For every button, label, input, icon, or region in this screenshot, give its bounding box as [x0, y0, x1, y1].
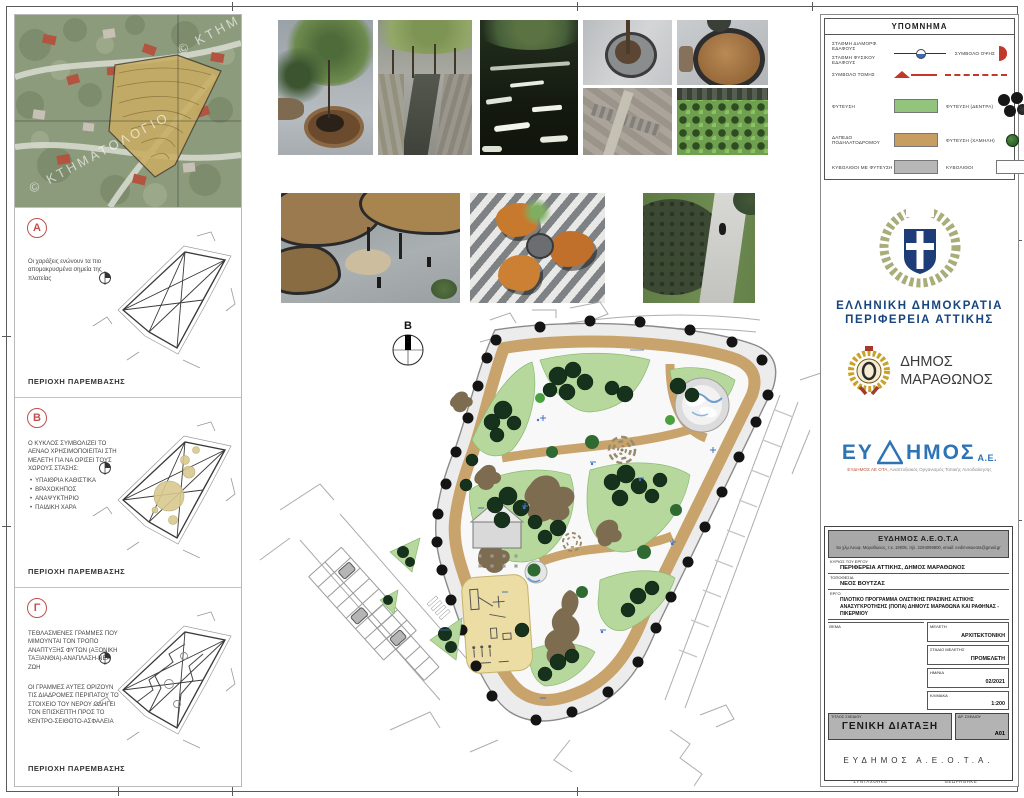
legend-planting: ΦΥΤΕΥΣΗ — [832, 104, 894, 109]
project-row: ΕΡΓΟ ΠΙΛΟΤΙΚΟ ΠΡΟΓΡΑΜΜΑ ΟΛΙΣΤΙΚΗΣ ΠΡΑΣΙΝ… — [828, 590, 1009, 620]
elevation-marker-icon — [999, 46, 1007, 61]
ref-photo-grass-pavers — [677, 88, 768, 155]
republic-line1: ΕΛΛΗΝΙΚΗ ΔΗΜΟΚΡΑΤΙΑ — [821, 300, 1018, 312]
marathon-emblem-icon — [846, 345, 892, 397]
checked-signature: ΘΕΩΡΗΘΗΚΕ ΓΕΩΡΓΙΟΣ ΚΑΡΑΜΕΣΙΝΗΣ — [913, 779, 1009, 798]
panel-b-caption: ΠΕΡΙΟΧΗ ΠΑΡΕΜΒΑΣΗΣ — [28, 567, 125, 576]
ref-photo-tree-planter — [278, 20, 373, 155]
sheet-number-box: ΑΡ. ΣΧΕΔΙΟΥ Α01 — [955, 713, 1009, 740]
north-symbol — [100, 271, 111, 285]
concept-panel-c: Γ ΤΕΘΛΑΣΜΕΝΕΣ ΓΡΑΜΜΕΣ ΠΟΥ ΜΙΜΟΥΝΤΑΙ ΤΟΝ … — [15, 587, 241, 785]
north-symbol — [100, 651, 111, 665]
legend-pavers: ΚΥΒΟΛΙΘΟΙ — [946, 165, 996, 170]
company-address: 5ο χλμ Λεωφ. Μαραθώνος, τ.κ. 19005, τηλ.… — [829, 545, 1008, 550]
shrub-symbol-icon — [1006, 134, 1019, 147]
stage-value: ΠΡΟΜΕΛΕΤΗ — [971, 656, 1005, 662]
subject-label: ΘΕΜΑ — [829, 624, 924, 629]
company-name: ΕΥΔΗΜΟΣ Α.Ε.Ο.Τ.Α — [829, 534, 1008, 543]
republic-line2: ΠΕΡΙΦΕΡΕΙΑ ΑΤΤΙΚΗΣ — [821, 314, 1018, 326]
hellenic-republic-logo: ΕΛΛΗΝΙΚΗ ΔΗΜΟΚΡΑΤΙΑ ΠΕΡΙΦΕΡΕΙΑ ΑΤΤΙΚΗΣ — [821, 195, 1018, 326]
drawing-title-box: ΤΙΤΛΟΣ ΣΧΕΔΙΟΥ ΓΕΝΙΚΗ ΔΙΑΤΑΞΗ — [828, 713, 952, 740]
north-symbol — [100, 461, 111, 475]
zigzag-paths — [137, 644, 203, 728]
subject-area: ΘΕΜΑ — [828, 622, 924, 710]
evdimos-ae: Α.Ε. — [978, 453, 998, 463]
panel-c-letter: Γ — [27, 598, 47, 618]
pavers-swatch — [996, 160, 1024, 174]
drafted-label: ΣΥΝΤΑΧΘΗΚΕ — [828, 779, 913, 784]
checked-label: ΘΕΩΡΗΘΗΚΕ — [913, 779, 1009, 784]
ref-photo-stripe-benches — [470, 193, 605, 303]
study-label: ΜΕΛΕΤΗ — [930, 624, 947, 629]
date-value: 02/2021 — [986, 679, 1006, 685]
legend-view-symbol: ΣΥΜΒΟΛΟ ΟΨΗΣ — [952, 51, 995, 56]
ref-photo-round-bench — [677, 20, 768, 85]
scale-value: 1:200 — [991, 701, 1005, 707]
project-label: ΕΡΓΟ — [830, 591, 1007, 596]
ref-photo-tree-grate — [583, 20, 672, 85]
evdimos-delta-icon — [877, 440, 903, 465]
evdimos-sub1: ΕΥΔΗΜΟΣ ΑΕ ΟΤΑ, — [847, 467, 888, 472]
evdimos-rest: ΗΜΟΣ — [906, 441, 976, 465]
project-value: ΠΙΛΟΤΙΚΟ ΠΡΟΓΡΑΜΜΑ ΟΛΙΣΤΙΚΗΣ ΠΡΑΣΙΝΗΣ ΑΣ… — [840, 597, 1007, 617]
border-tick — [232, 2, 233, 11]
stage-label: ΣΤΑΔΙΟ ΜΕΛΕΤΗΣ — [930, 647, 964, 652]
evdimos-eu: ΕΥ — [842, 441, 874, 465]
date-box: ΗΜ/ΝΙΑ 02/2021 — [927, 668, 1009, 688]
legend-level-formed: ΣΤΑΘΜΗ ΔΙΑΜΟΡΦ. ΕΔΑΦΟΥΣ — [832, 41, 894, 51]
concept-panel-a: Α Οι χαράξεις ενώνουν τα πιο απομακρυσμέ… — [15, 207, 241, 398]
stage-box: ΣΤΑΔΙΟ ΜΕΛΕΤΗΣ ΠΡΟΜΕΛΕΤΗ — [927, 645, 1009, 665]
panel-a-caption: ΠΕΡΙΟΧΗ ΠΑΡΕΜΒΑΣΗΣ — [28, 377, 125, 386]
date-label: ΗΜ/ΝΙΑ — [930, 670, 944, 675]
north-label: Β — [404, 320, 412, 332]
drawing-title-label: ΤΙΤΛΟΣ ΣΧΕΔΙΟΥ — [831, 715, 862, 719]
legend-pavers-planted: ΚΥΒΟΛΙΘΟΙ ΜΕ ΦΥΤΕΥΣΗ — [832, 165, 894, 170]
level-symbol — [894, 48, 946, 58]
panel-a-letter: Α — [27, 218, 47, 238]
location-value: ΝΕΟΣ ΒΟΥΤΖΑΣ — [840, 581, 1007, 587]
legend-section-symbol: ΣΥΜΒΟΛΟ ΤΟΜΗΣ — [832, 72, 894, 77]
title-block-header: ΕΥΔΗΜΟΣ Α.Ε.Ο.Τ.Α 5ο χλμ Λεωφ. Μαραθώνος… — [828, 530, 1009, 558]
border-tick — [2, 336, 11, 337]
ref-photo-circle-garden — [643, 193, 755, 303]
study-value: ΑΡΧΙΤΕΚΤΟΝΙΚΗ — [961, 633, 1005, 639]
border-tick — [2, 526, 11, 527]
panel-c-diagram — [85, 610, 237, 755]
republic-emblem-icon — [860, 195, 980, 295]
owner-row: ΚΥΡΙΟΣ ΤΟΥ ΕΡΓΟΥ ΠΕΡΙΦΕΡΕΙΑ ΑΤΤΙΚΗΣ, ΔΗΜ… — [828, 558, 1009, 574]
evdimos-logo: ΕΥ ΗΜΟΣ Α.Ε. ΕΥΔΗΜΟΣ ΑΕ ΟΤΑ, Αναπτυξιακό… — [821, 440, 1018, 472]
bike-path-swatch — [894, 133, 938, 147]
planting-swatch — [894, 99, 938, 113]
trees-symbol-icon — [996, 92, 1024, 120]
scale-label: ΚΛΙΜΑΚΑ — [930, 693, 948, 698]
ref-photo-water-channel — [378, 20, 472, 155]
owner-value: ΠΕΡΙΦΕΡΕΙΑ ΑΤΤΙΚΗΣ, ΔΗΜΟΣ ΜΑΡΑΘΩΝΟΣ — [840, 565, 1007, 571]
border-tick — [577, 2, 578, 11]
drawing-sheet: © ΚΤΗΜΑΤΟΛΟΓΙΟ © ΚΤΗΜ Α Οι χαράξεις ενών… — [0, 0, 1024, 798]
ref-photo-light-strips — [480, 20, 578, 155]
legend-planting-low: ΦΥΤΕΥΣΗ (ΧΑΜΗΛΗ) — [946, 138, 996, 143]
scale-box: ΚΛΙΜΑΚΑ 1:200 — [927, 691, 1009, 711]
panel-b-letter: Β — [27, 408, 47, 428]
municipality-line2: ΜΑΡΑΘΩΝΟΣ — [900, 371, 993, 389]
study-box: ΜΕΛΕΤΗ ΑΡΧΙΤΕΚΤΟΝΙΚΗ — [927, 622, 1009, 642]
concept-panel-b: Β Ο ΚΥΚΛΟΣ ΣΥΜΒΟΛΙΖΕΙ ΤΟ ΑΕΝΑΟ ΧΡΗΣΙΜΟΠΟ… — [15, 397, 241, 588]
border-tick — [118, 787, 119, 796]
marathon-logo: ΔΗΜΟΣ ΜΑΡΑΘΩΝΟΣ — [821, 345, 1018, 397]
legend-title: ΥΠΟΜΝΗΜΑ — [825, 19, 1014, 35]
legend-level-natural: ΣΤΑΘΜΗ ΦΥΣΙΚΟΥ ΕΔΑΦΟΥΣ — [832, 55, 894, 65]
site-plan: Β — [240, 300, 820, 790]
panel-c-caption: ΠΕΡΙΟΧΗ ΠΑΡΕΜΒΑΣΗΣ — [28, 764, 125, 773]
title-block: ΕΥΔΗΜΟΣ Α.Ε.Ο.Τ.Α 5ο χλμ Λεωφ. Μαραθώνος… — [824, 526, 1013, 781]
sheet-number: Α01 — [995, 731, 1005, 737]
legend-bike-path: ΔΑΠΕΔΟ ΠΟΔΗΛΑΤΟΔΡΟΜΟΥ — [832, 135, 894, 145]
legend: ΥΠΟΜΝΗΜΑ ΣΤΑΘΜΗ ΔΙΑΜΟΡΦ. ΕΔΑΦΟΥΣ ΣΤΑΘΜΗ … — [824, 18, 1015, 180]
kiosk-circle — [525, 561, 547, 583]
legend-planting-trees: ΦΥΤΕΥΣΗ (ΔΕΝΤΡΑ) — [946, 104, 996, 109]
panel-b-diagram — [85, 420, 237, 558]
drawing-title: ΓΕΝΙΚΗ ΔΙΑΤΑΞΗ — [842, 721, 938, 732]
firm-name: ΕΥΔΗΜΟΣ Α.Ε.Ο.Τ.Α. — [828, 756, 1009, 765]
drafted-signature: ΣΥΝΤΑΧΘΗΚΕ ΠΑΝΑΓΙΩΤΗΣ ΜΑΡΚΟΥ — [828, 779, 913, 798]
location-row: ΤΟΠΟΘΕΣΙΑ ΝΕΟΣ ΒΟΥΤΖΑΣ — [828, 574, 1009, 590]
north-arrow: Β — [393, 320, 423, 365]
ref-photo-paving-detail — [583, 88, 672, 155]
sheet-number-label: ΑΡ. ΣΧΕΔΙΟΥ — [958, 715, 981, 719]
right-column: ΥΠΟΜΝΗΜΑ ΣΤΑΘΜΗ ΔΙΑΜΟΡΦ. ΕΔΑΦΟΥΣ ΣΤΑΘΜΗ … — [820, 14, 1019, 787]
municipality-line1: ΔΗΜΟΣ — [900, 353, 993, 371]
border-tick — [812, 2, 813, 11]
node-circles — [165, 653, 188, 708]
left-column: © ΚΤΗΜΑΤΟΛΟΓΙΟ © ΚΤΗΜ Α Οι χαράξεις ενών… — [14, 14, 242, 787]
border-tick — [232, 787, 233, 796]
pavers-planted-swatch — [894, 160, 938, 174]
ref-photo-curvy-deck — [281, 193, 460, 303]
owner-label: ΚΥΡΙΟΣ ΤΟΥ ΕΡΓΟΥ — [830, 559, 1007, 564]
location-label: ΤΟΠΟΘΕΣΙΑ — [830, 575, 1007, 580]
section-marker-icon — [894, 71, 1007, 78]
evdimos-sub2: Αναπτυξιακός Οργανισμός Τοπικής Αυτοδιοί… — [889, 467, 992, 472]
panel-a-diagram — [85, 230, 237, 368]
aerial-photo: © ΚΤΗΜΑΤΟΛΟΓΙΟ © ΚΤΗΜ — [15, 15, 241, 207]
